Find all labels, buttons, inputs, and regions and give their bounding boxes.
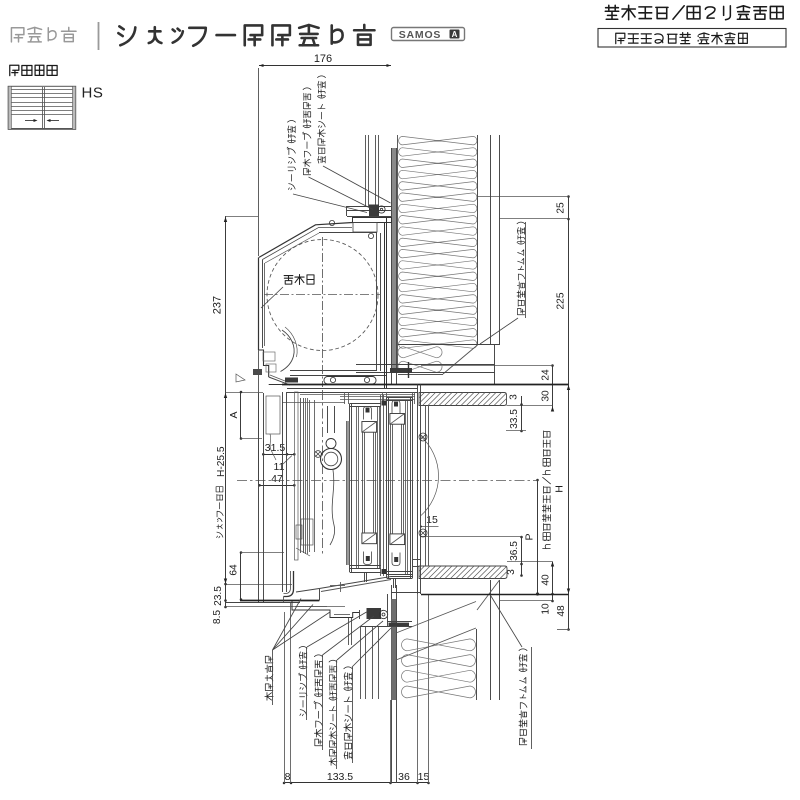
svg-text:8.5: 8.5 [212,610,223,624]
svg-text:15: 15 [426,514,438,526]
svg-text:H-25.5: H-25.5 [216,446,227,477]
svg-text:H: H [554,485,566,493]
svg-text:A: A [452,30,458,39]
svg-text:10: 10 [541,603,552,615]
svg-text:24: 24 [541,369,552,381]
svg-text:SAMOS: SAMOS [399,29,442,41]
svg-text:33.5: 33.5 [509,409,520,429]
svg-text:176: 176 [314,53,332,65]
svg-text:237: 237 [212,296,224,314]
svg-text:A: A [228,411,240,418]
svg-text:40: 40 [541,574,552,586]
svg-text:15: 15 [418,771,430,783]
svg-text:225: 225 [556,292,567,309]
svg-text:36.5: 36.5 [509,541,520,561]
svg-text:3: 3 [506,569,517,575]
svg-text:36: 36 [398,771,410,783]
svg-text:64: 64 [229,564,240,576]
svg-text:23.5: 23.5 [213,586,224,606]
svg-text:25: 25 [556,202,567,214]
svg-text:30: 30 [541,390,552,402]
svg-text:47: 47 [271,473,283,485]
svg-text:48: 48 [556,605,567,617]
svg-text:133.5: 133.5 [327,771,353,783]
svg-text:8: 8 [285,771,291,783]
svg-text:3: 3 [509,394,520,400]
svg-text:HS: HS [82,85,104,102]
svg-text:P: P [524,533,536,540]
